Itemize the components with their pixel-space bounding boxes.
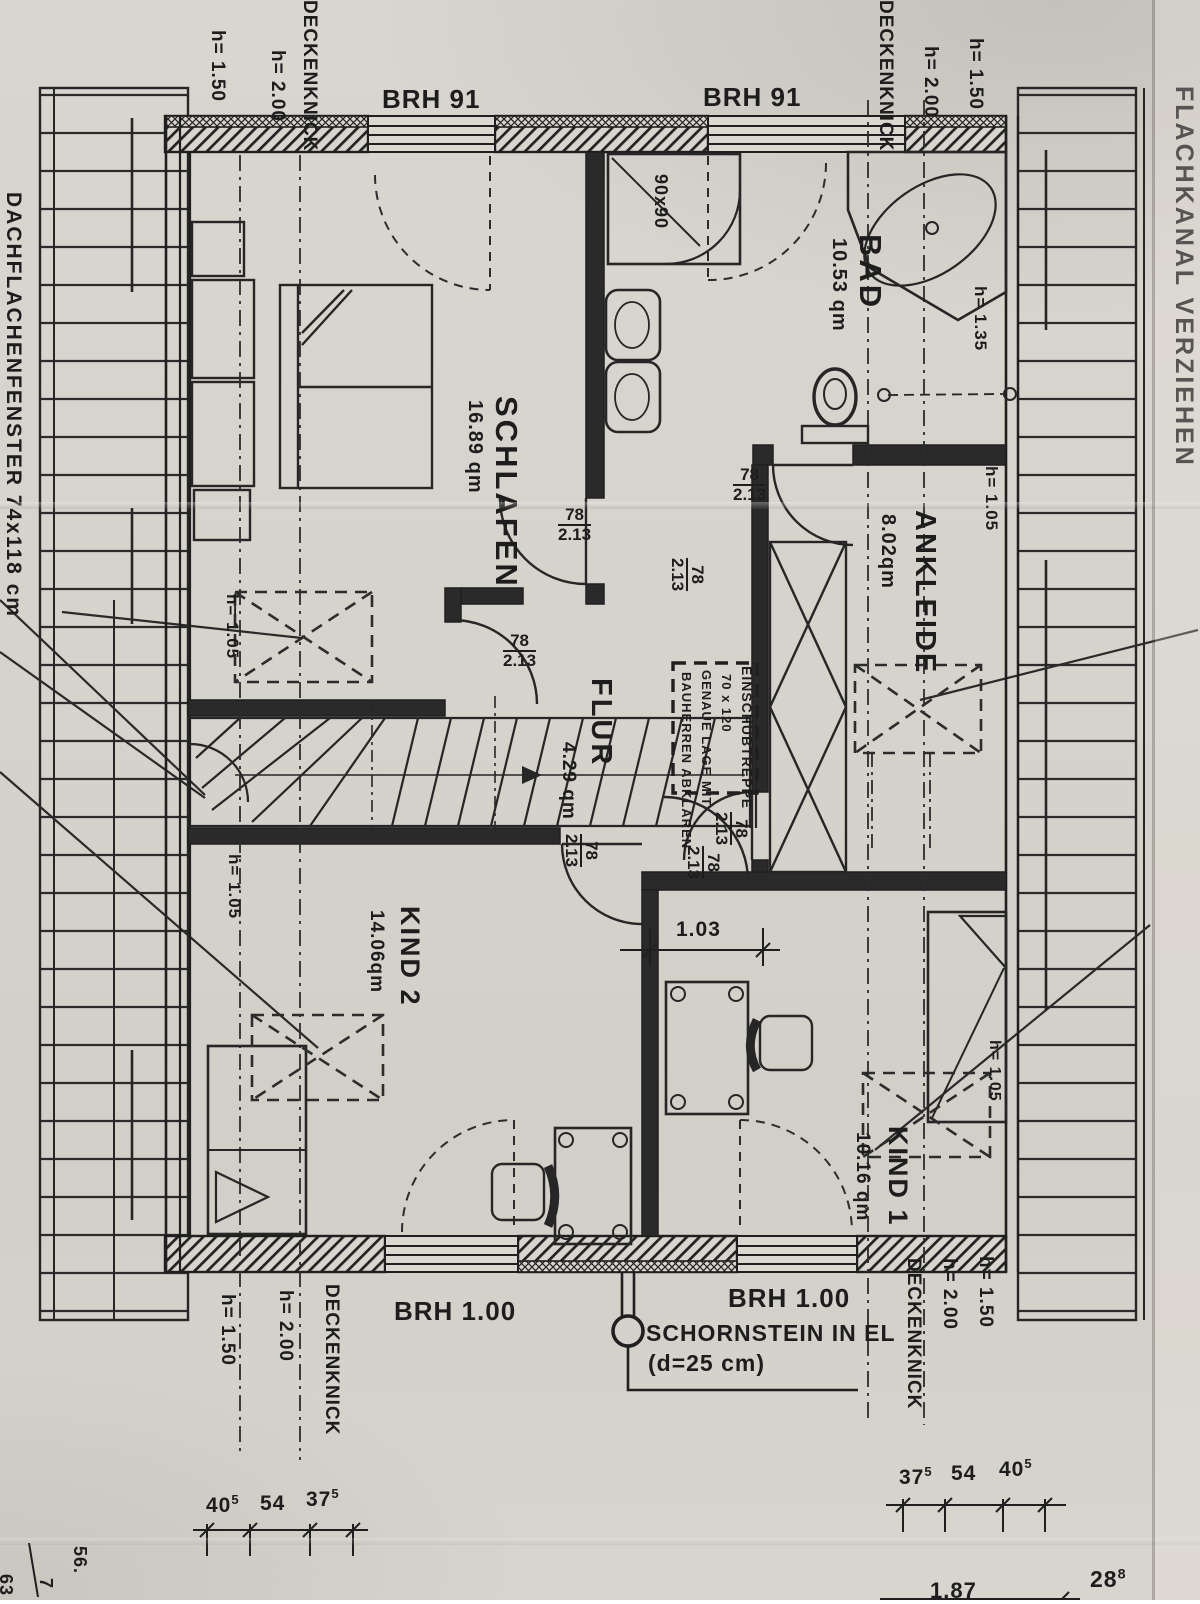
dim-br-1: 375: [899, 1464, 933, 1490]
window-label-brh100-right: BRH 1.00: [728, 1283, 850, 1314]
room-area-flur: 4.29 qm: [557, 742, 579, 820]
deckenknick-label-bottom-left: DECKENKNICK: [320, 1284, 342, 1435]
paper-fold-strip: [1155, 0, 1200, 1600]
paper-crease-horizontal-lower: [0, 1538, 1200, 1545]
deckenknick-label-top-left: DECKENKNICK: [298, 0, 320, 151]
deckenknick-label-top-right: DECKENKNICK: [874, 0, 896, 151]
room-label-bad: BAD: [852, 234, 888, 310]
height-label-h200-bottom-left: h= 2.00: [274, 1290, 296, 1362]
window-label-brh91-right: BRH 91: [703, 82, 801, 113]
chimney-note-line1: SCHORNSTEIN IN EL: [646, 1320, 896, 1347]
height-label-h200-bottom-right: h= 2.00: [938, 1258, 960, 1330]
paper-crease-horizontal: [0, 502, 1200, 509]
scanned-floorplan-page: FLACHKANAL VERZIEHEN DACHFLACHENFENSTER …: [0, 0, 1200, 1600]
room-label-ankleide: ANKLEIDE: [908, 510, 941, 674]
wardrobe: [770, 542, 846, 872]
door-width: 78: [558, 506, 591, 526]
door-size-label: 782.13: [733, 466, 766, 505]
room-area-bad: 10.53 qm: [827, 238, 850, 332]
room-area-kind1: 10.16 qm: [851, 1132, 873, 1221]
room-label-flur: FLUR: [584, 678, 617, 767]
height-label-h105-ankleide: h= 1.05: [981, 466, 1001, 531]
dim-bl-3: 375: [306, 1486, 340, 1512]
room-area-ankleide: 8.02qm: [876, 514, 899, 589]
room-area-schlafen: 16.89 qm: [463, 400, 486, 494]
corner-figure-7: 7: [35, 1578, 56, 1589]
dim-bl-2: 54: [260, 1490, 285, 1516]
height-label-h150-top-left: h= 1.50: [206, 30, 228, 102]
shower-size-label: 90x90: [650, 174, 671, 229]
door-size-label: 782.13: [503, 632, 536, 671]
door-size-label: 782.13: [711, 812, 750, 845]
dim-br-3: 405: [999, 1456, 1033, 1482]
edge-note-dachfenster: DACHFLACHENFENSTER 74x118 cm: [1, 192, 25, 618]
room-label-kind2: KIND 2: [394, 906, 425, 1007]
roof-band-right: [1018, 88, 1144, 1320]
dim-bl-1: 405: [206, 1492, 240, 1518]
corner-figure-28: 288: [1090, 1566, 1127, 1593]
room-label-kind1: KIND 1: [882, 1126, 913, 1227]
height-label-h200-top-left: h= 2.00: [266, 50, 288, 122]
corner-figure-187: 1.87: [930, 1578, 977, 1604]
height-label-h200-top-right: h= 2.00: [919, 46, 941, 118]
height-label-h150-bottom-left: h= 1.50: [216, 1294, 238, 1366]
height-label-h105-left-kind2: h= 1.05: [224, 854, 244, 919]
dim-br-2: 54: [951, 1460, 976, 1486]
loft-ladder-note-line2: 70 x 120: [719, 674, 734, 733]
chimney-note-line2: (d=25 cm): [648, 1350, 765, 1377]
dimension-label-niche: 1.03: [676, 918, 721, 942]
height-label-h105-left-schlafen: h= 1.05: [222, 594, 242, 659]
height-label-h150-top-right: h= 1.50: [964, 38, 986, 110]
door-size-label: 782.13: [667, 558, 706, 591]
height-label-h105-kind1: h= 1.05: [985, 1040, 1003, 1102]
window-label-brh100-left: BRH 1.00: [394, 1296, 516, 1327]
height-label-h150-bottom-right: h= 1.50: [974, 1256, 996, 1328]
bedroom-furniture: [192, 222, 432, 540]
loft-ladder-note-line1: EINSCHUBTREPPE: [739, 666, 755, 809]
height-label-h135-bad: h= 1.35: [970, 286, 990, 351]
floorplan-drawing: [0, 0, 1200, 1600]
room-label-schlafen: SCHLAFEN: [488, 396, 524, 589]
window-label-brh91-left: BRH 91: [382, 84, 480, 115]
deckenknick-label-bottom-right: DECKENKNICK: [902, 1258, 924, 1409]
corner-figure-56: 56.: [69, 1546, 90, 1574]
corner-figure-63: 63: [0, 1574, 16, 1596]
room-area-kind2: 14.06qm: [365, 910, 387, 993]
door-height: 2.13: [558, 526, 591, 544]
door-size-label: 782.13: [561, 834, 600, 867]
loft-ladder-note-line4: BAUHERREN ABKLÄREN: [679, 672, 694, 849]
door-size-label: 78 2.13: [558, 506, 591, 545]
door-size-label: 782.13: [683, 846, 722, 879]
loft-ladder-note-line3: GENAUE LAGE MIT: [699, 670, 714, 806]
